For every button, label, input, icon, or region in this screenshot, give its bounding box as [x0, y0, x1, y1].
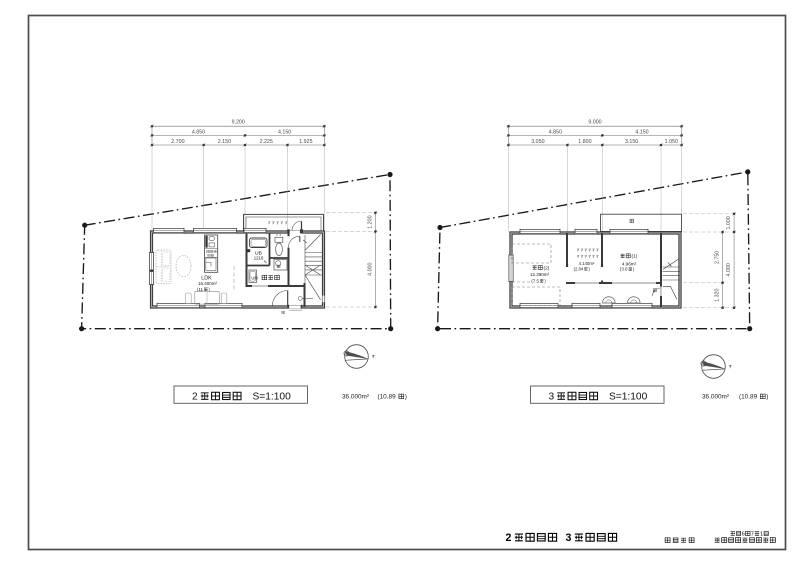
svg-text:4.000: 4.000	[367, 263, 373, 276]
svg-text:2.150: 2.150	[218, 139, 231, 145]
svg-text:1: 1	[760, 531, 763, 537]
svg-text:2.750: 2.750	[714, 251, 720, 264]
svg-text:36.000m²: 36.000m²	[702, 394, 729, 401]
svg-text:): )	[405, 394, 407, 401]
svg-text:2: 2	[192, 391, 198, 402]
svg-text:(10.89: (10.89	[739, 394, 758, 401]
svg-text:(7.5: (7.5	[531, 278, 539, 283]
svg-text:3.150: 3.150	[625, 139, 638, 145]
svg-text:1.320: 1.320	[714, 289, 720, 302]
svg-text:4.850: 4.850	[192, 129, 205, 135]
svg-text:6: 6	[742, 531, 745, 537]
svg-text:UM: UM	[251, 275, 258, 280]
svg-text:2.225: 2.225	[260, 139, 273, 145]
svg-text:1216: 1216	[254, 255, 264, 260]
svg-text:(10.89: (10.89	[378, 394, 397, 401]
svg-text:(2): (2)	[544, 265, 550, 271]
svg-text:1.800: 1.800	[578, 139, 591, 145]
svg-text:9.000: 9.000	[588, 120, 601, 126]
svg-text:1.050: 1.050	[665, 139, 678, 145]
svg-text:9.200: 9.200	[232, 120, 245, 126]
svg-text:1.200: 1.200	[367, 215, 373, 228]
svg-text:S=1:100: S=1:100	[609, 391, 648, 402]
svg-text:4.000: 4.000	[726, 263, 732, 276]
svg-text:2.700: 2.700	[171, 139, 184, 145]
svg-text:(2.84: (2.84	[574, 266, 584, 271]
svg-text:1.000: 1.000	[726, 216, 732, 229]
svg-text:7: 7	[751, 531, 754, 537]
svg-text:36.000m²: 36.000m²	[342, 394, 369, 401]
svg-text:): )	[766, 394, 768, 401]
svg-text:(3.0: (3.0	[620, 267, 628, 272]
svg-text:2: 2	[506, 532, 512, 544]
svg-text:1.925: 1.925	[299, 139, 312, 145]
svg-text:16.400m²: 16.400m²	[198, 281, 218, 286]
svg-text:3: 3	[549, 391, 555, 402]
svg-text:4.150: 4.150	[278, 129, 291, 135]
svg-text:(1): (1)	[632, 254, 638, 260]
svg-text:3.050: 3.050	[531, 139, 544, 145]
svg-text:S=1:100: S=1:100	[253, 391, 292, 402]
svg-text:4.850: 4.850	[549, 129, 562, 135]
svg-text:3: 3	[566, 532, 572, 544]
svg-text:4.150: 4.150	[635, 129, 648, 135]
svg-text:12.390m²: 12.390m²	[530, 272, 550, 277]
svg-text:(11: (11	[197, 287, 204, 292]
